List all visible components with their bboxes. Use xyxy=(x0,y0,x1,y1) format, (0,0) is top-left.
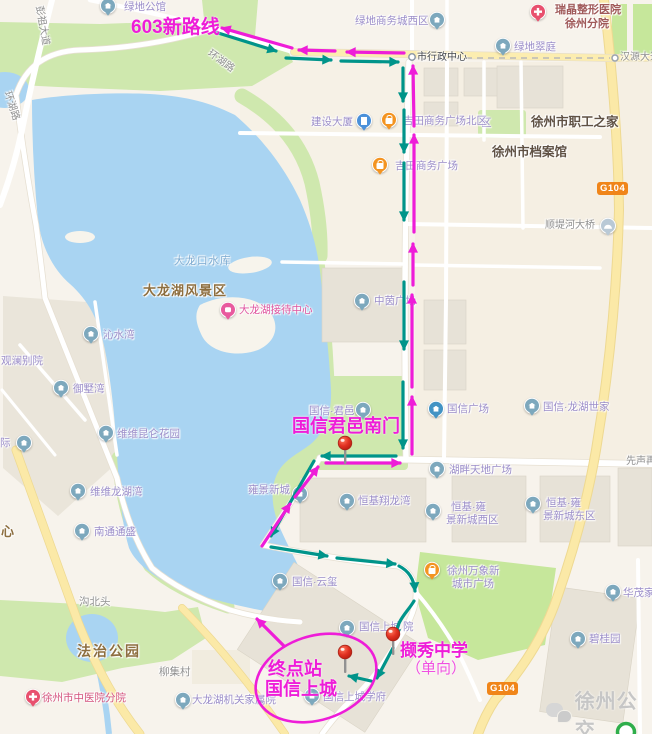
road-label-huanhu-road-west: 环湖路 xyxy=(1,90,21,122)
watermark: 徐州公交 xyxy=(545,685,652,734)
label-hengji-xianglongwan: 恒基翔龙湾 xyxy=(358,496,411,508)
map-labels-layer: 彭祖大道环湖路环湖路汉源大道市行政中心绿地公馆绿地商务城西区绿地翠庭瑞晶整形医院… xyxy=(0,0,652,734)
label-guoxin-longhu-shijia: 国信·龙湖世家 xyxy=(543,402,610,414)
house-icon[interactable] xyxy=(339,493,355,509)
bus-route-map: 彭祖大道环湖路环湖路汉源大道市行政中心绿地公馆绿地商务城西区绿地翠庭瑞晶整形医院… xyxy=(0,0,652,734)
label-hengji-yong-west-2: 景新城西区 xyxy=(446,515,499,527)
label-goubeitou: 沟北头 xyxy=(79,597,111,609)
terminus-annotation-line2: 国信上城 xyxy=(265,675,337,701)
label-tcm-hospital-branch: 徐州市中医院分院 xyxy=(42,693,126,705)
label-fazhi-park: 法治公园 xyxy=(77,644,141,660)
house-icon[interactable] xyxy=(425,503,441,519)
house-icon[interactable] xyxy=(605,584,621,600)
house-icon[interactable] xyxy=(53,380,69,396)
label-guoxin-plaza: 国信广场 xyxy=(447,404,489,416)
hospital-icon[interactable] xyxy=(25,689,41,705)
road-label-huanhu-road: 环湖路 xyxy=(205,48,236,75)
label-hupan-tiandi-plaza: 湖畔天地广场 xyxy=(449,465,512,477)
shop-icon[interactable] xyxy=(424,562,440,578)
label-hengji-yong-west-1: 恒基·雍 xyxy=(451,502,486,514)
house-icon[interactable] xyxy=(429,461,445,477)
label-guoxin-shangcheng-part1: 国信上城 xyxy=(359,622,401,634)
label-lvdi-cuiting: 绿地翠庭 xyxy=(514,42,556,54)
label-ruijing-hospital-1: 瑞晶整形医院 xyxy=(555,4,621,16)
label-jitian-plaza-north: 吉田商务广场北区 xyxy=(403,116,487,128)
mall-icon[interactable] xyxy=(428,401,444,417)
house-icon[interactable] xyxy=(354,293,370,309)
label-ji-partial: 际 xyxy=(0,438,11,450)
shop-icon[interactable] xyxy=(372,157,388,173)
label-guanlan-courtyard: 观澜别院 xyxy=(1,356,43,368)
label-hengji-yong-east-1: 恒基·雍 xyxy=(546,498,581,510)
shop-icon[interactable] xyxy=(381,112,397,128)
house-icon[interactable] xyxy=(175,692,191,708)
label-huamao-home: 华茂家园 xyxy=(623,588,652,600)
label-biguiyuan: 碧桂园 xyxy=(589,634,621,646)
label-guoxin-shangcheng-part2: 院 xyxy=(403,622,414,634)
road-label-pengzu-avenue: 彭祖大道 xyxy=(33,5,51,46)
label-xin-partial: 心 xyxy=(1,525,15,540)
label-city-archives: 徐州市档案馆 xyxy=(492,145,567,159)
label-weiwei-kunlun-garden: 维维昆仑花园 xyxy=(117,429,180,441)
label-ruijing-hospital-2: 徐州分院 xyxy=(565,18,609,30)
house-icon[interactable] xyxy=(495,38,511,54)
label-qinshuiwan: 沁水湾 xyxy=(103,330,135,342)
building-icon[interactable] xyxy=(356,113,372,129)
label-yongjing-newtown: 雍景新城 xyxy=(248,485,290,497)
label-shundihe-bridge: 顺堤河大桥 xyxy=(545,220,595,231)
label-wanxiang-plaza-2: 城市广场 xyxy=(452,579,494,591)
house-icon[interactable] xyxy=(570,631,586,647)
label-yushuwan: 御墅湾 xyxy=(73,384,105,396)
house-icon[interactable] xyxy=(429,12,445,28)
label-dalongkou-reservoir: 大龙口水库 xyxy=(174,256,232,268)
label-nantong-tongsheng: 南通通盛 xyxy=(94,527,136,539)
house-icon[interactable] xyxy=(525,496,541,512)
label-weiwei-longhuwan: 维维龙湖湾 xyxy=(90,487,143,499)
chat-bubbles-icon xyxy=(545,700,572,728)
g104-badge: G104 xyxy=(487,682,518,695)
label-jianshe-tower: 建设大厦 xyxy=(311,117,353,129)
school-direction-note: （单向） xyxy=(406,657,466,678)
house-icon[interactable] xyxy=(74,523,90,539)
label-dalonghu-scenic-area: 大龙湖风景区 xyxy=(143,284,227,299)
label-guoxin-yunxi: 国信·云玺 xyxy=(292,577,338,589)
house-icon[interactable] xyxy=(292,486,308,502)
label-workers-home: 徐州市职工之家 xyxy=(531,115,619,129)
watermark-text: 徐州公交 xyxy=(575,685,652,734)
label-dalonghu-reception: 大龙湖接待中心 xyxy=(239,305,313,317)
bridge-icon[interactable] xyxy=(600,218,616,234)
house-icon[interactable] xyxy=(70,483,86,499)
label-hengji-yong-east-2: 景新城东区 xyxy=(543,511,596,523)
label-dalonghu-staff-quarters: 大龙湖机关家属院 xyxy=(192,695,276,707)
road-label-hanyuan-avenue: 汉源大道 xyxy=(620,52,652,63)
house-icon[interactable] xyxy=(98,425,114,441)
hospital-icon[interactable] xyxy=(530,4,546,20)
house-icon[interactable] xyxy=(524,398,540,414)
label-liuji-village: 柳集村 xyxy=(159,667,191,679)
house-icon[interactable] xyxy=(272,573,288,589)
label-jitian-plaza: 吉田商务广场 xyxy=(395,161,458,173)
south-gate-annotation: 国信君邑南门 xyxy=(292,412,400,438)
house-icon[interactable] xyxy=(16,435,32,451)
label-zhongyin-plaza: 中茵广场 xyxy=(374,296,416,308)
label-city-admin-center: 市行政中心 xyxy=(417,52,467,63)
house-icon[interactable] xyxy=(100,0,116,14)
g104-badge: G104 xyxy=(597,182,628,195)
label-wanxiang-plaza-1: 徐州万象新 xyxy=(447,566,500,578)
scenic-icon[interactable] xyxy=(220,302,236,318)
route-name-annotation: 603新路线 xyxy=(131,12,220,39)
house-icon[interactable] xyxy=(83,326,99,342)
house-icon[interactable] xyxy=(339,620,355,636)
label-lvdi-business-west: 绿地商务城西区 xyxy=(355,16,429,28)
label-xiansheng-partial: 先声再 xyxy=(626,456,652,467)
